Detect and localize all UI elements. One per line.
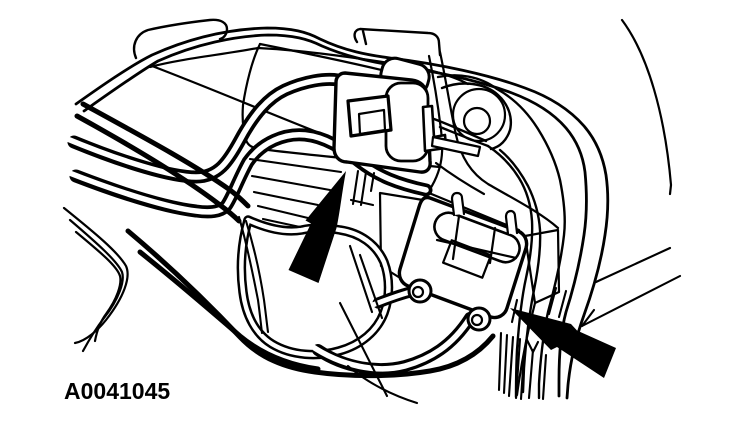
- svg-text:A0041045: A0041045: [64, 378, 170, 404]
